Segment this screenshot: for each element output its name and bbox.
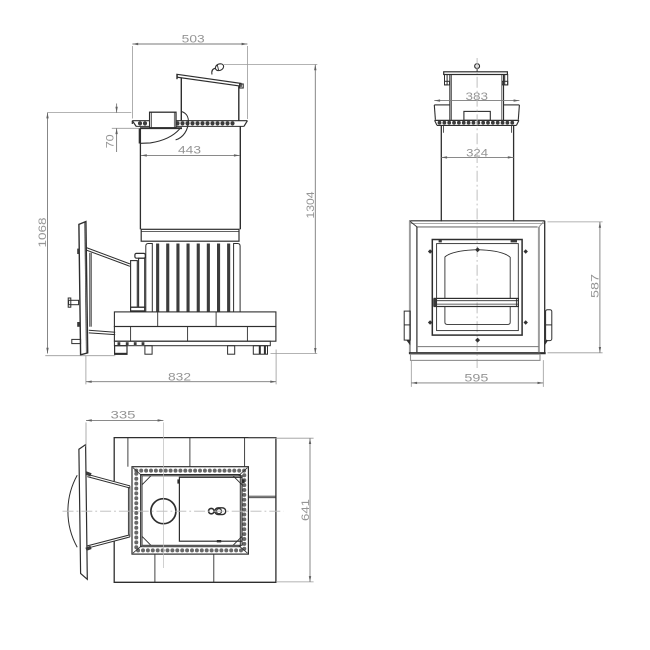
svg-text:641: 641: [300, 499, 312, 521]
svg-text:587: 587: [590, 274, 602, 298]
svg-text:503: 503: [182, 34, 205, 46]
svg-text:443: 443: [178, 145, 201, 157]
svg-text:1068: 1068: [37, 218, 49, 248]
svg-text:832: 832: [168, 372, 191, 384]
svg-text:1304: 1304: [305, 192, 317, 219]
svg-text:335: 335: [111, 410, 136, 422]
svg-text:70: 70: [104, 134, 116, 148]
svg-text:595: 595: [464, 373, 488, 385]
